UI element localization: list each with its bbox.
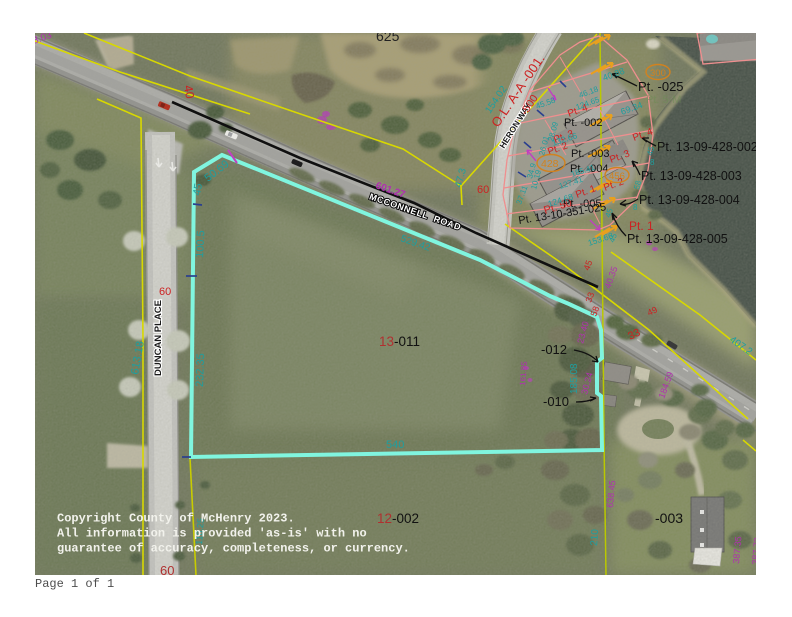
svg-text:456: 456 — [609, 171, 625, 182]
svg-text:Pt. 13-09-428-004: Pt. 13-09-428-004 — [639, 193, 740, 207]
svg-text:-012: -012 — [541, 342, 567, 357]
svg-text:300: 300 — [650, 68, 666, 79]
svg-text:428: 428 — [541, 158, 559, 170]
svg-text:DUNCAN PLACE: DUNCAN PLACE — [153, 300, 164, 376]
svg-text:8: 8 — [633, 203, 638, 212]
svg-text:-010: -010 — [543, 394, 569, 409]
svg-text:Pt. -003: Pt. -003 — [571, 148, 610, 160]
svg-text:Pt. 13-09-428-002: Pt. 13-09-428-002 — [657, 140, 758, 154]
svg-text:100.5: 100.5 — [194, 230, 207, 258]
svg-text:Page 1 of 1: Page 1 of 1 — [35, 577, 114, 591]
svg-text:210: 210 — [589, 528, 601, 546]
svg-text:Copyright County of McHenry 20: Copyright County of McHenry 2023. — [57, 512, 295, 526]
svg-text:8: 8 — [650, 158, 655, 167]
svg-text:60: 60 — [159, 286, 171, 298]
svg-text:40: 40 — [181, 84, 197, 100]
svg-text:185.08: 185.08 — [569, 363, 580, 394]
svg-text:Pt. 13-09-428-003: Pt. 13-09-428-003 — [641, 169, 742, 183]
svg-text:Pt. -025: Pt. -025 — [638, 79, 684, 94]
svg-text:Pt. 5-M: Pt. 5-M — [646, 94, 681, 106]
svg-text:Pt. 13-09-428-005: Pt. 13-09-428-005 — [627, 232, 728, 246]
svg-text:540: 540 — [386, 439, 404, 451]
svg-text:Pt. 1: Pt. 1 — [629, 219, 654, 233]
svg-text:60: 60 — [477, 184, 489, 196]
svg-text:-003: -003 — [655, 510, 683, 526]
svg-text:All information is provided 'a: All information is provided 'as-is' with… — [57, 527, 367, 541]
svg-text:13-011: 13-011 — [379, 334, 420, 349]
svg-text:guarantee of accuracy, complet: guarantee of accuracy, completeness, or … — [57, 542, 410, 556]
svg-text:12-002: 12-002 — [377, 511, 419, 526]
svg-text:232.35: 232.35 — [194, 353, 207, 387]
svg-text:45: 45 — [191, 182, 205, 196]
